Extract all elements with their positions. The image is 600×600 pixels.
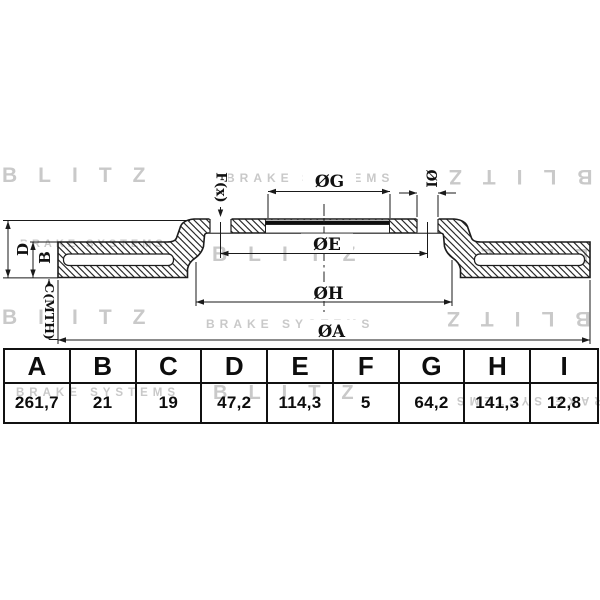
table-header-cell: E	[268, 350, 334, 384]
table-value-cell: 114,3	[268, 384, 334, 422]
table-header-cell: A	[5, 350, 71, 384]
center-bore-band	[265, 221, 390, 225]
table-value-cell: 5	[334, 384, 400, 422]
dim-label-f-x: F(x)	[213, 172, 229, 202]
product-drawing-card: BLITZ BRAKE SYSTEMS BLITZ BRAKE SYSTEMS …	[0, 0, 600, 600]
table-value-cell: 12,8	[531, 384, 597, 422]
vent-channel-left	[64, 254, 174, 266]
dim-G-lines	[268, 192, 390, 219]
table-header-cell: H	[465, 350, 531, 384]
dim-label-og: ØG	[315, 172, 344, 192]
dim-I-lines	[399, 193, 456, 217]
table-header-cell: B	[71, 350, 137, 384]
table-value-cell: 21	[71, 384, 137, 422]
dim-label-b: B	[36, 251, 54, 264]
table-header-cell: G	[400, 350, 466, 384]
dim-label-oe: ØE	[313, 235, 341, 255]
table-header-cell: I	[531, 350, 597, 384]
dim-label-oi: ØI	[423, 169, 439, 187]
table-header-cell: D	[202, 350, 268, 384]
vent-channel-right	[475, 254, 585, 266]
dim-label-c-mth: C(MTH)	[42, 283, 57, 340]
table-value-cell: 141,3	[465, 384, 531, 422]
dim-label-oh: ØH	[314, 284, 344, 303]
table-value-cell: 47,2	[202, 384, 268, 422]
table-value-cell: 261,7	[5, 384, 71, 422]
table-header-cell: C	[137, 350, 203, 384]
center-bore	[265, 220, 390, 233]
dimension-spec-table: A B C D E F G H I 261,7 21 19 47,2 114,3…	[3, 348, 599, 424]
dim-label-d: D	[14, 243, 32, 256]
brake-disc-technical-drawing: D B C(MTH) F(x) ØI ØG ØE ØH ØA	[0, 0, 600, 600]
table-header-cell: F	[334, 350, 400, 384]
table-value-cell: 64,2	[400, 384, 466, 422]
dim-label-oa: ØA	[318, 322, 345, 341]
table-value-cell: 19	[137, 384, 203, 422]
